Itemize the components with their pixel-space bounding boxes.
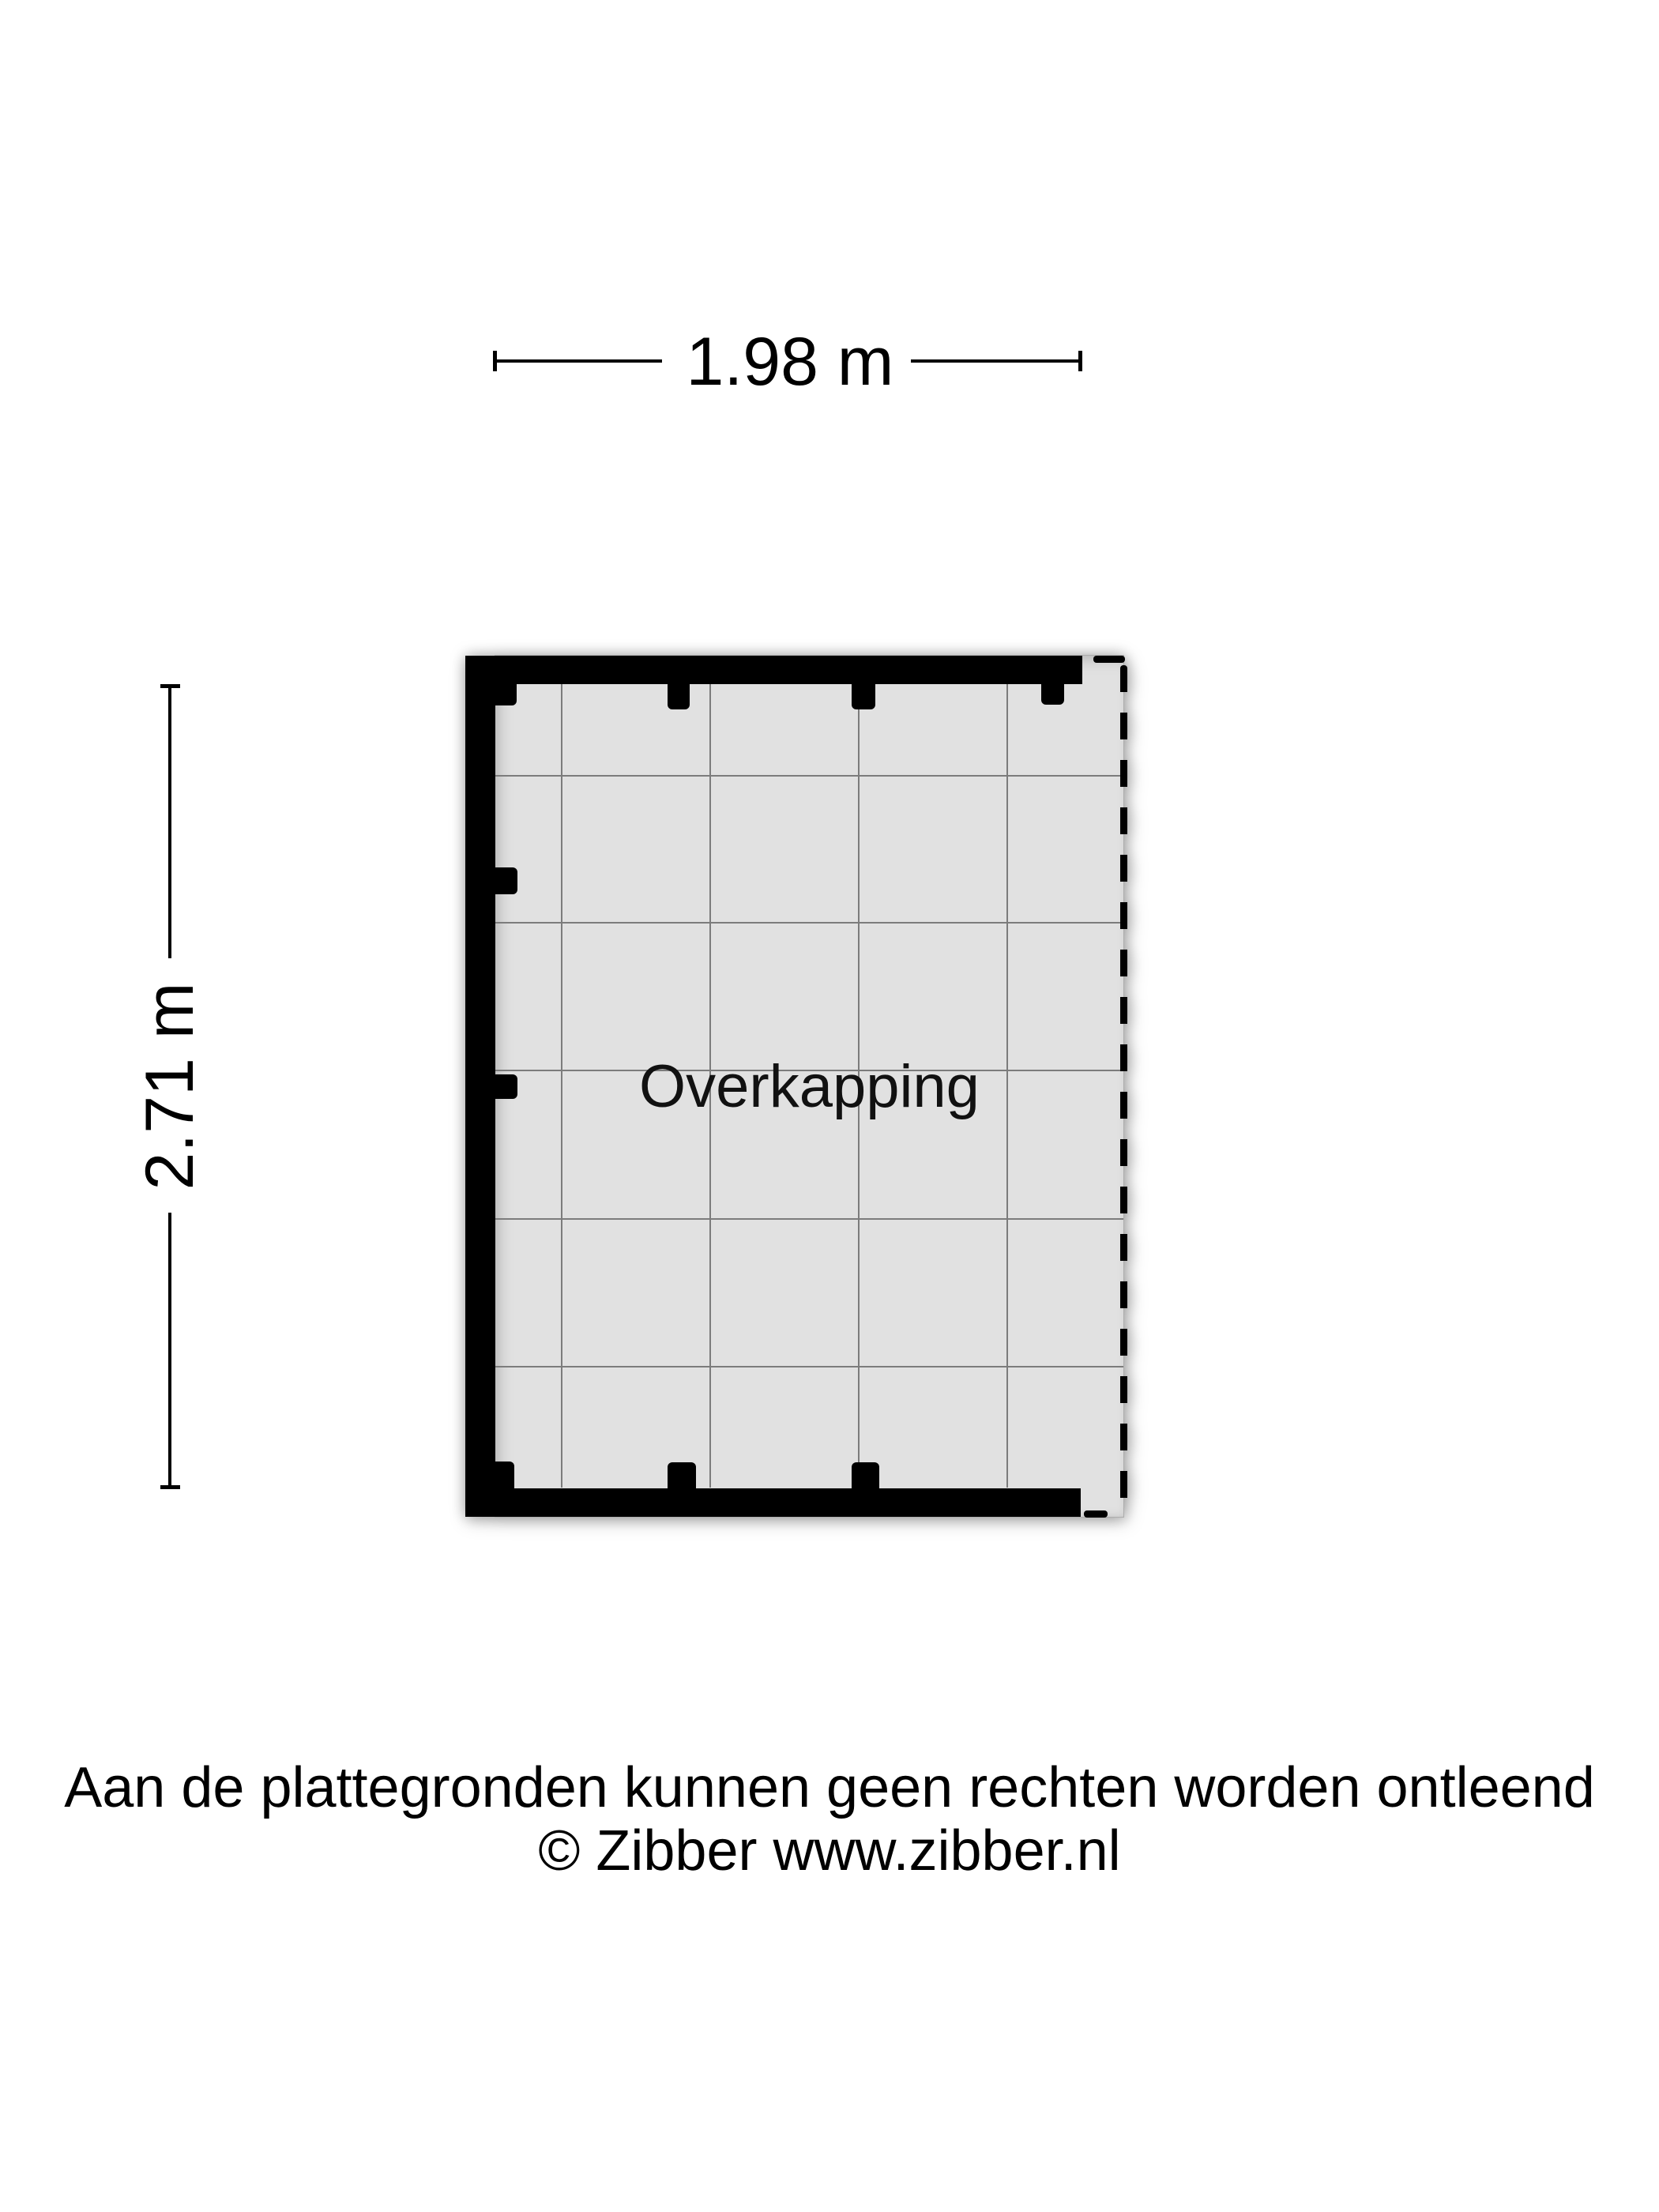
grid-line-horizontal	[495, 1218, 1123, 1220]
grid-line-horizontal	[495, 922, 1123, 924]
room-label: Overkapping	[495, 1048, 1123, 1127]
wall-top	[465, 656, 1082, 684]
grid-line-horizontal	[495, 1366, 1123, 1367]
post	[494, 867, 517, 894]
post	[668, 683, 690, 709]
post	[495, 683, 517, 705]
post	[1041, 683, 1064, 705]
copyright-text: © Zibber www.zibber.nl	[0, 1817, 1659, 1885]
page: { "dimensions": { "width_label": "1.98 m…	[0, 0, 1659, 2212]
wall-left	[465, 656, 495, 1517]
open-side-dash-stub-bottom	[1084, 1510, 1108, 1518]
post	[494, 1461, 514, 1490]
grid-line-horizontal	[495, 775, 1123, 777]
disclaimer-text: Aan de plattegronden kunnen geen rechten…	[0, 1754, 1659, 1822]
post	[668, 1462, 696, 1490]
post	[852, 1462, 879, 1490]
wall-bottom	[465, 1488, 1081, 1517]
post	[852, 683, 875, 709]
open-side-dash-stub-top	[1093, 656, 1125, 663]
